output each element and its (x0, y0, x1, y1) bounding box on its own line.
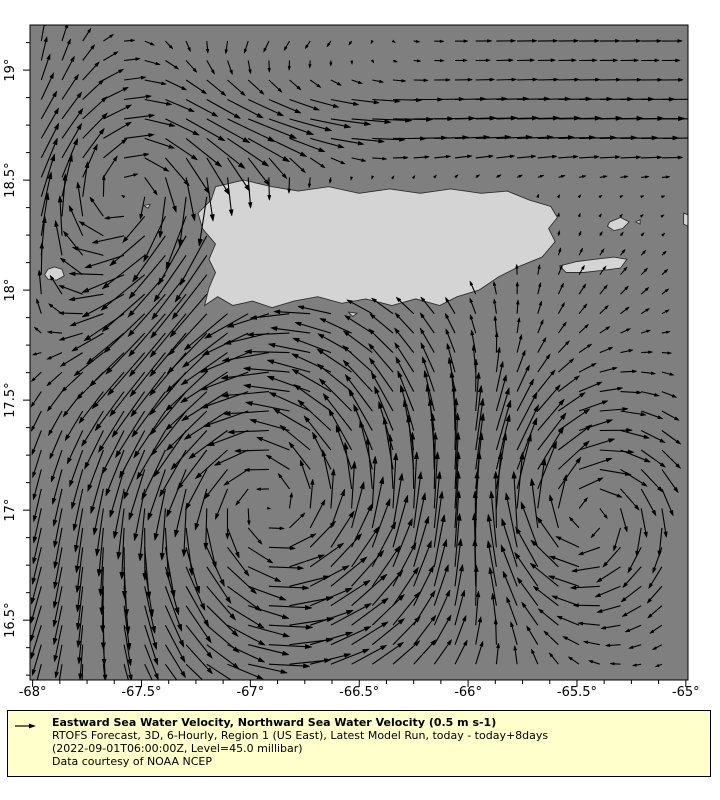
legend-title: Eastward Sea Water Velocity, Northward S… (52, 716, 548, 729)
velocity-arrow-shaft (62, 313, 83, 314)
x-tick-label: -66° (454, 685, 482, 700)
velocity-arrow-shaft (496, 475, 497, 528)
legend-box: Eastward Sea Water Velocity, Northward S… (7, 710, 711, 777)
y-tick-label: 17.5° (3, 382, 18, 417)
figure: -68°-67.5°-67°-66.5°-66°-65.5°-65°19°18.… (0, 0, 720, 800)
velocity-arrow-head (699, 117, 706, 121)
legend-text: Eastward Sea Water Velocity, Northward S… (50, 711, 552, 772)
velocity-arrow-head (690, 97, 696, 101)
velocity-arrow-shaft (621, 157, 639, 158)
x-tick-label: -65.5° (557, 685, 597, 700)
velocity-arrow-shaft (517, 80, 535, 81)
y-tick-label: 16.5° (3, 602, 18, 637)
y-tick-label: 17° (3, 499, 18, 522)
x-tick-label: -67.5° (121, 685, 161, 700)
velocity-arrow-head (694, 136, 700, 140)
velocity-arrow-head (181, 687, 186, 693)
x-tick-label: -66.5° (339, 685, 379, 700)
velocity-arrow-shaft (641, 157, 659, 158)
plot-area (30, 21, 706, 696)
velocity-map: -68°-67.5°-67°-66.5°-66°-65.5°-65°19°18.… (0, 0, 720, 800)
y-tick-label: 18° (3, 279, 18, 302)
velocity-arrow-head (57, 688, 61, 694)
x-tick-label: -65° (672, 685, 700, 700)
y-tick-label: 18.5° (3, 162, 18, 197)
velocity-arrow-head (104, 690, 108, 696)
velocity-arrow-shaft (496, 80, 513, 81)
legend-subtitle-line: RTOFS Forecast, 3D, 6-Hourly, Region 1 (… (52, 729, 548, 742)
legend-reference-arrow-icon (14, 721, 44, 731)
x-tick-label: -68° (19, 685, 47, 700)
velocity-arrow-shaft (662, 157, 680, 158)
legend-credit-line: Data courtesy of NOAA NCEP (52, 755, 548, 768)
x-tick-label: -67° (236, 685, 264, 700)
legend-subtitle-line: (2022-09-01T06:00:00Z, Level=45.0 millib… (52, 742, 548, 755)
velocity-arrow-head (206, 684, 212, 690)
velocity-arrow-shaft (247, 469, 269, 470)
velocity-arrow-shaft (103, 178, 104, 197)
y-tick-label: 19° (3, 59, 18, 82)
velocity-arrow-head (80, 689, 84, 695)
